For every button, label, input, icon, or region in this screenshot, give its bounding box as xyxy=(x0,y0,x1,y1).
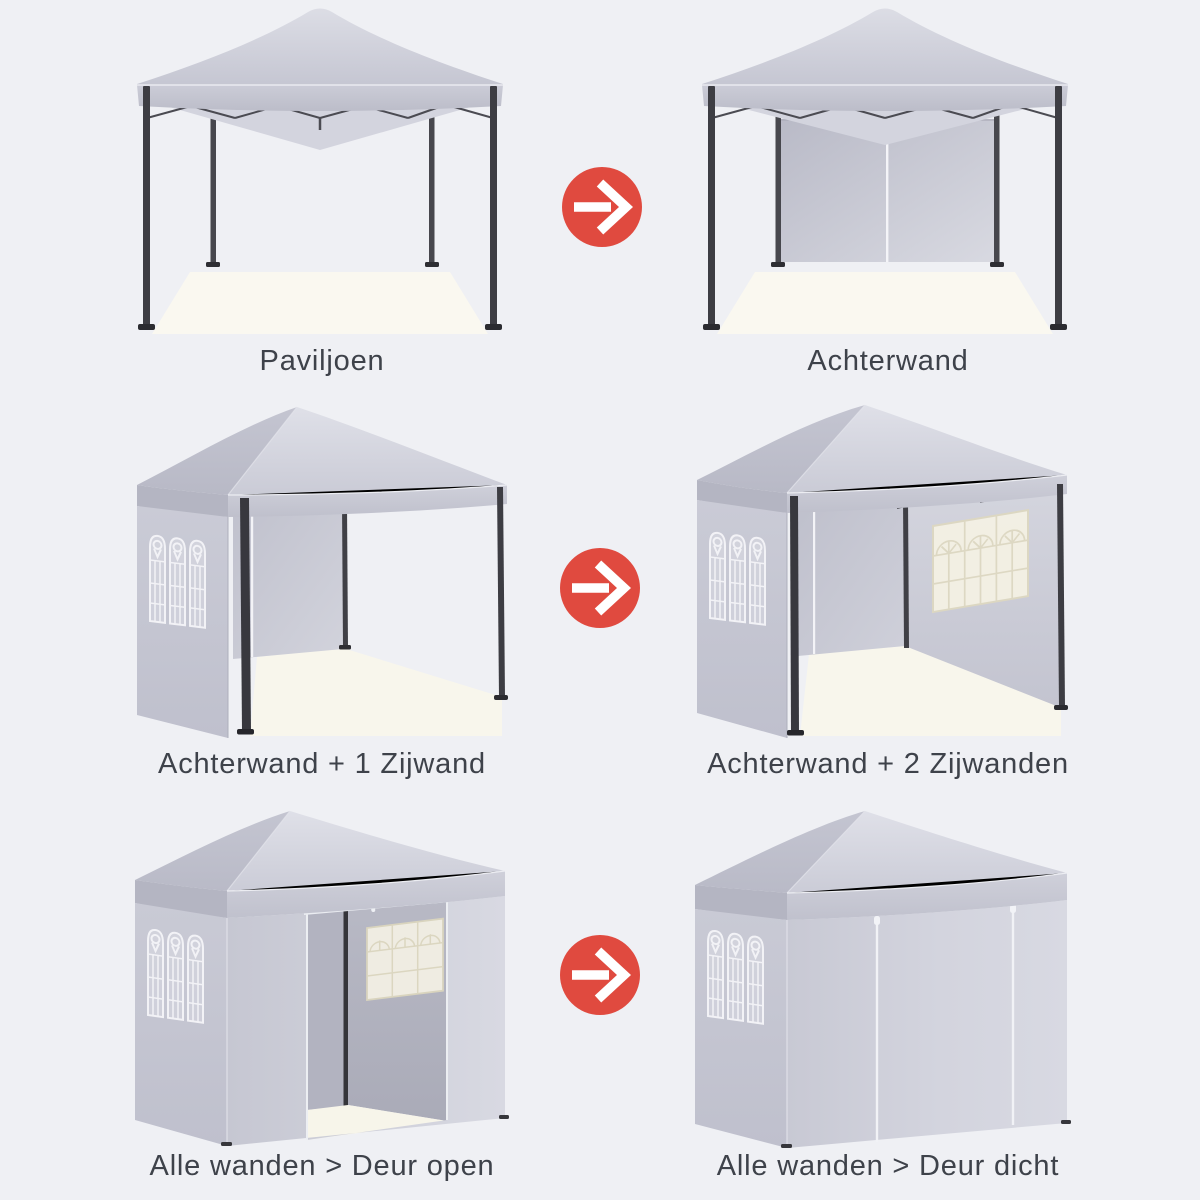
side-wall-windows xyxy=(148,929,203,1023)
canopy xyxy=(697,405,1067,513)
tent-image-paviljoen xyxy=(90,0,550,340)
side-wall-windows xyxy=(150,535,205,628)
left-side-wall xyxy=(135,903,227,1146)
studio-floor xyxy=(717,272,1053,334)
gazebo-door-open-illustration xyxy=(90,808,550,1148)
arrow-right-icon xyxy=(562,167,642,247)
arrow-right-icon xyxy=(560,548,640,628)
side-wall-windows xyxy=(708,930,763,1024)
interior-corner-leg xyxy=(344,908,349,1106)
rear-leg xyxy=(903,498,909,648)
left-side-wall xyxy=(695,909,787,1148)
gazebo-frame-illustration xyxy=(90,0,550,340)
canopy xyxy=(137,9,503,112)
canopy xyxy=(695,811,1067,920)
tent-image-alle-wanden-deur-open xyxy=(90,808,550,1148)
gazebo-back-wall-illustration xyxy=(655,0,1115,340)
tent-image-alle-wanden-deur-dicht xyxy=(655,808,1115,1148)
caption-achterwand-2-zijwanden: Achterwand + 2 Zijwanden xyxy=(578,748,1198,781)
canopy xyxy=(137,407,507,517)
caption-paviljoen: Paviljoen xyxy=(12,345,632,378)
caption-alle-wanden-deur-open: Alle wanden > Deur open xyxy=(12,1150,632,1183)
studio-floor xyxy=(152,272,488,334)
interior-window xyxy=(367,919,443,1000)
interior-through-door xyxy=(307,900,447,1140)
canopy xyxy=(702,9,1068,112)
side-wall-window-large xyxy=(933,510,1028,612)
left-side-wall xyxy=(137,506,228,738)
back-wall xyxy=(798,502,905,656)
interior-floor xyxy=(250,648,502,736)
left-side-wall xyxy=(697,500,787,738)
arrow-right-icon xyxy=(560,935,640,1015)
tent-image-achterwand xyxy=(655,0,1115,340)
caption-achterwand-1-zijwand: Achterwand + 1 Zijwand xyxy=(12,748,632,781)
caption-achterwand: Achterwand xyxy=(578,345,1198,378)
gazebo-configurations-infographic: Paviljoen xyxy=(0,0,1200,1200)
tent-image-achterwand-1-zijwand xyxy=(90,400,550,740)
gazebo-door-closed-illustration xyxy=(655,808,1115,1148)
gazebo-one-side-wall-illustration xyxy=(90,400,550,740)
tent-image-achterwand-2-zijwanden xyxy=(655,400,1115,740)
gazebo-two-side-walls-illustration xyxy=(655,400,1115,740)
caption-alle-wanden-deur-dicht: Alle wanden > Deur dicht xyxy=(578,1150,1198,1183)
front-wall xyxy=(787,900,1067,1148)
side-wall-windows xyxy=(710,532,765,625)
